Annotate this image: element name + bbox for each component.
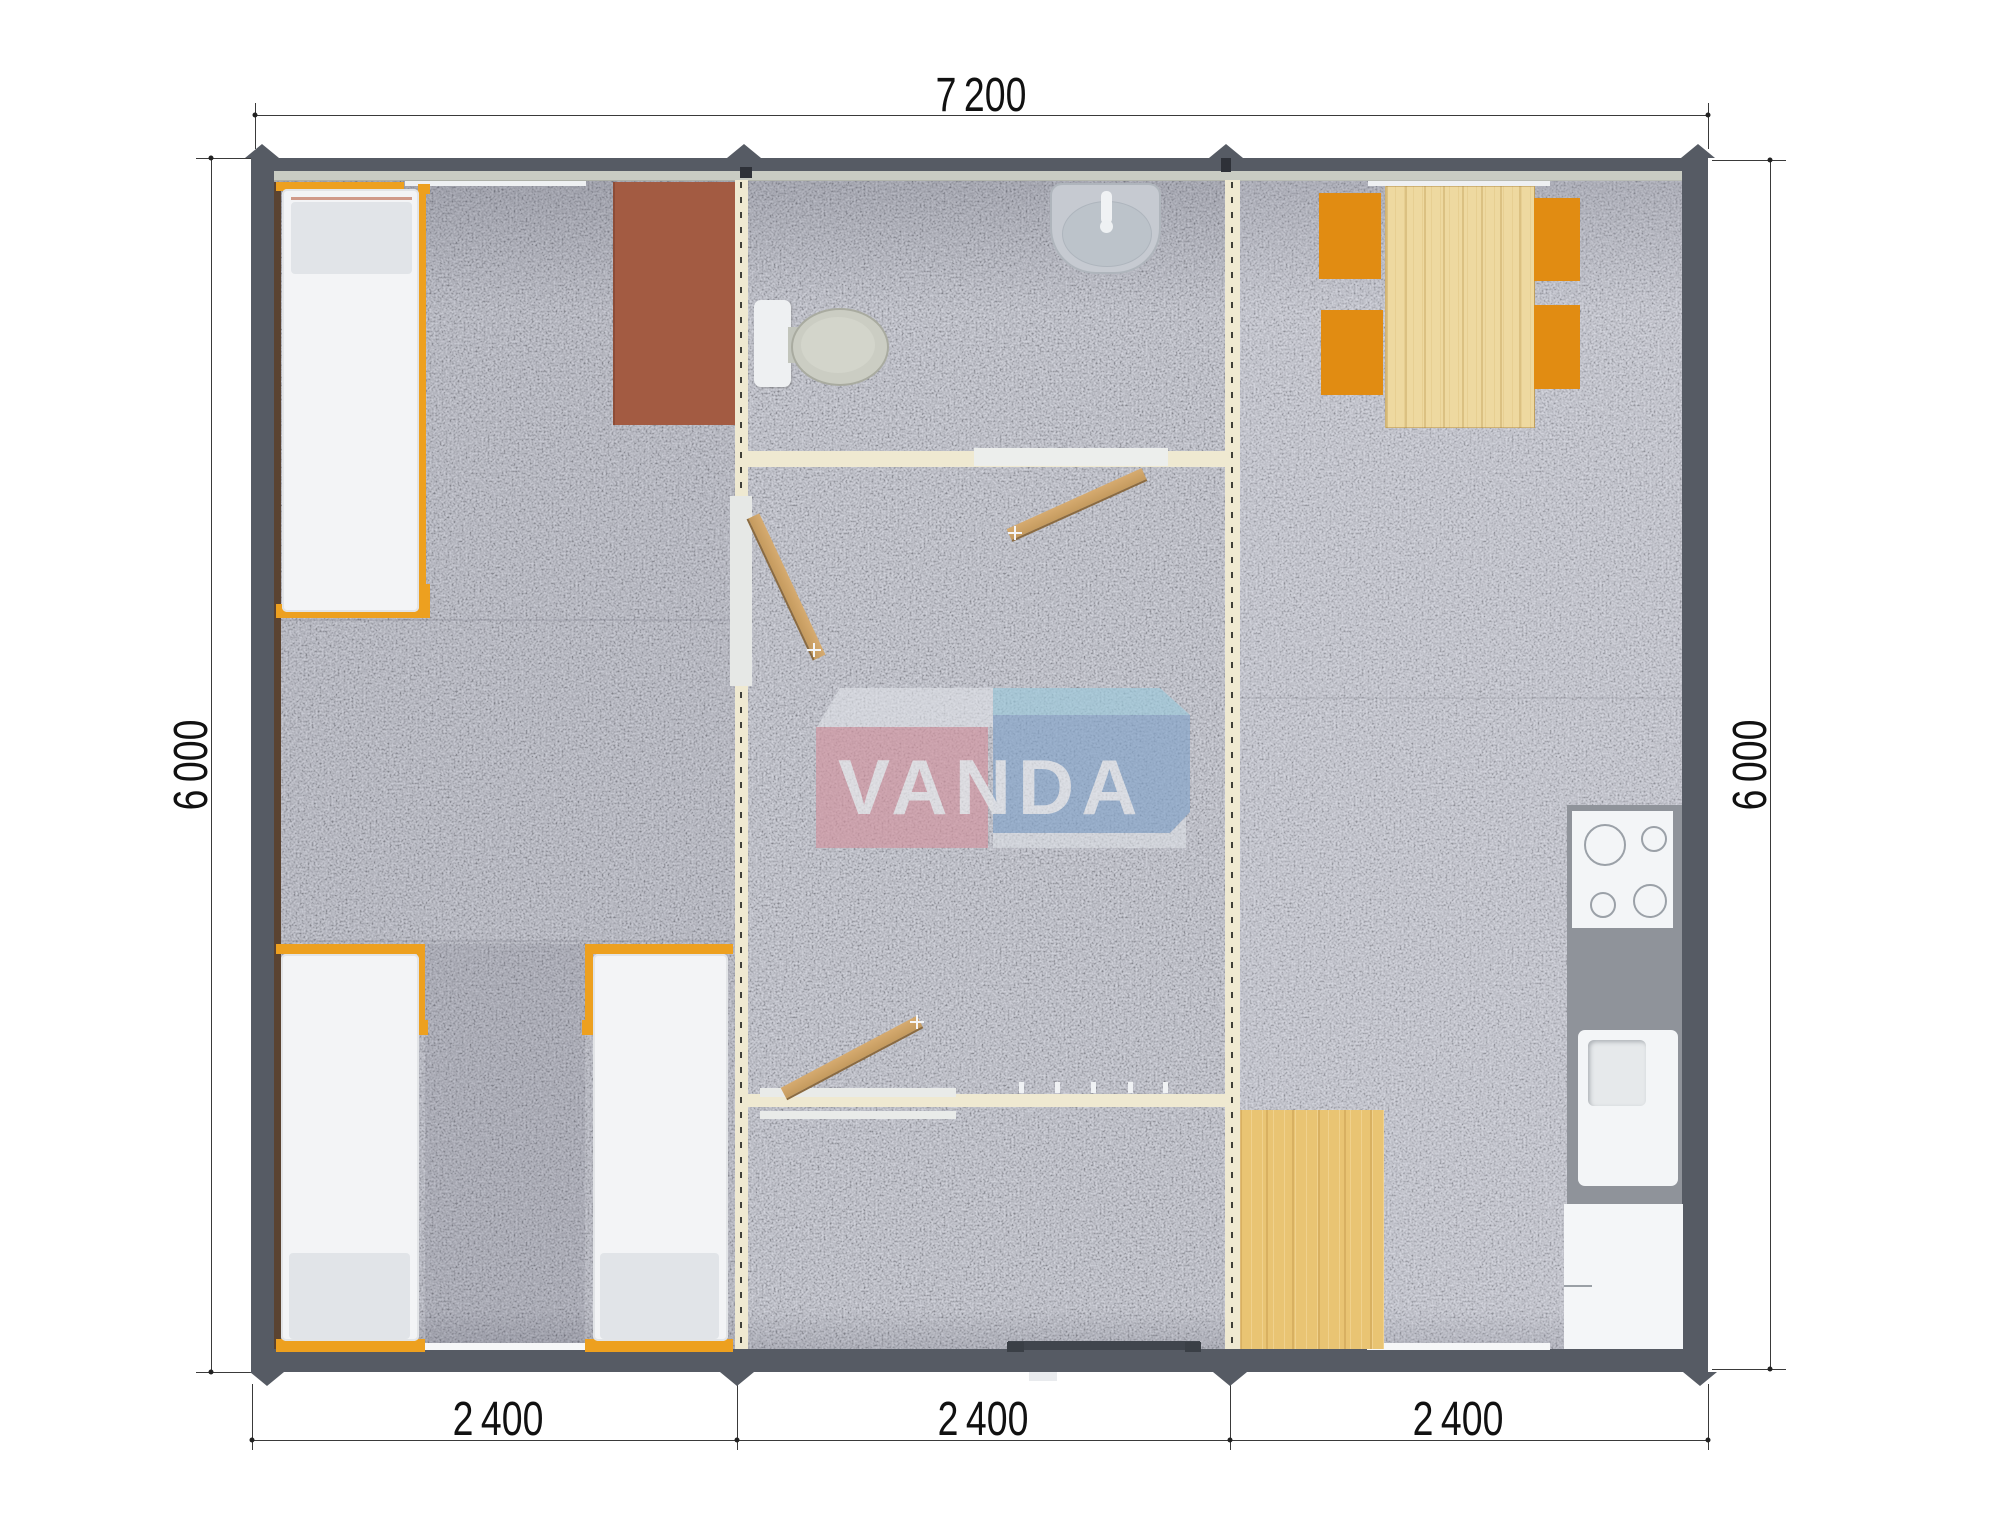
svg-text:VANDA: VANDA [838,743,1145,831]
